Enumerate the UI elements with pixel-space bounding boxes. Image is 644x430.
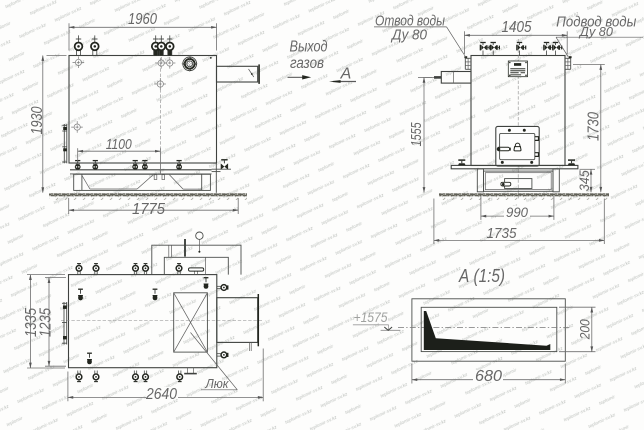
svg-text:А: А [340, 66, 352, 83]
svg-text:1235: 1235 [38, 308, 55, 337]
svg-text:Ду 80: Ду 80 [390, 27, 427, 43]
svg-text:990: 990 [506, 204, 528, 220]
svg-text:680: 680 [475, 368, 502, 385]
svg-text:1100: 1100 [106, 136, 133, 153]
svg-text:А (1:5): А (1:5) [458, 266, 505, 286]
svg-text:1405: 1405 [502, 19, 532, 36]
svg-text:1775: 1775 [132, 201, 165, 218]
svg-text:Люк: Люк [205, 376, 230, 391]
svg-text:200: 200 [577, 319, 593, 340]
svg-text:1730: 1730 [586, 112, 603, 141]
svg-text:Выход: Выход [290, 39, 328, 56]
svg-text:1960: 1960 [128, 11, 157, 28]
svg-text:345: 345 [576, 170, 592, 191]
svg-text:газов: газов [290, 55, 324, 72]
svg-text:+1575: +1575 [354, 310, 388, 325]
svg-text:1735: 1735 [487, 225, 518, 242]
svg-text:Ду 80: Ду 80 [578, 24, 614, 39]
svg-text:1555: 1555 [409, 122, 425, 147]
svg-text:2640: 2640 [145, 386, 177, 403]
svg-text:1930: 1930 [29, 106, 46, 134]
